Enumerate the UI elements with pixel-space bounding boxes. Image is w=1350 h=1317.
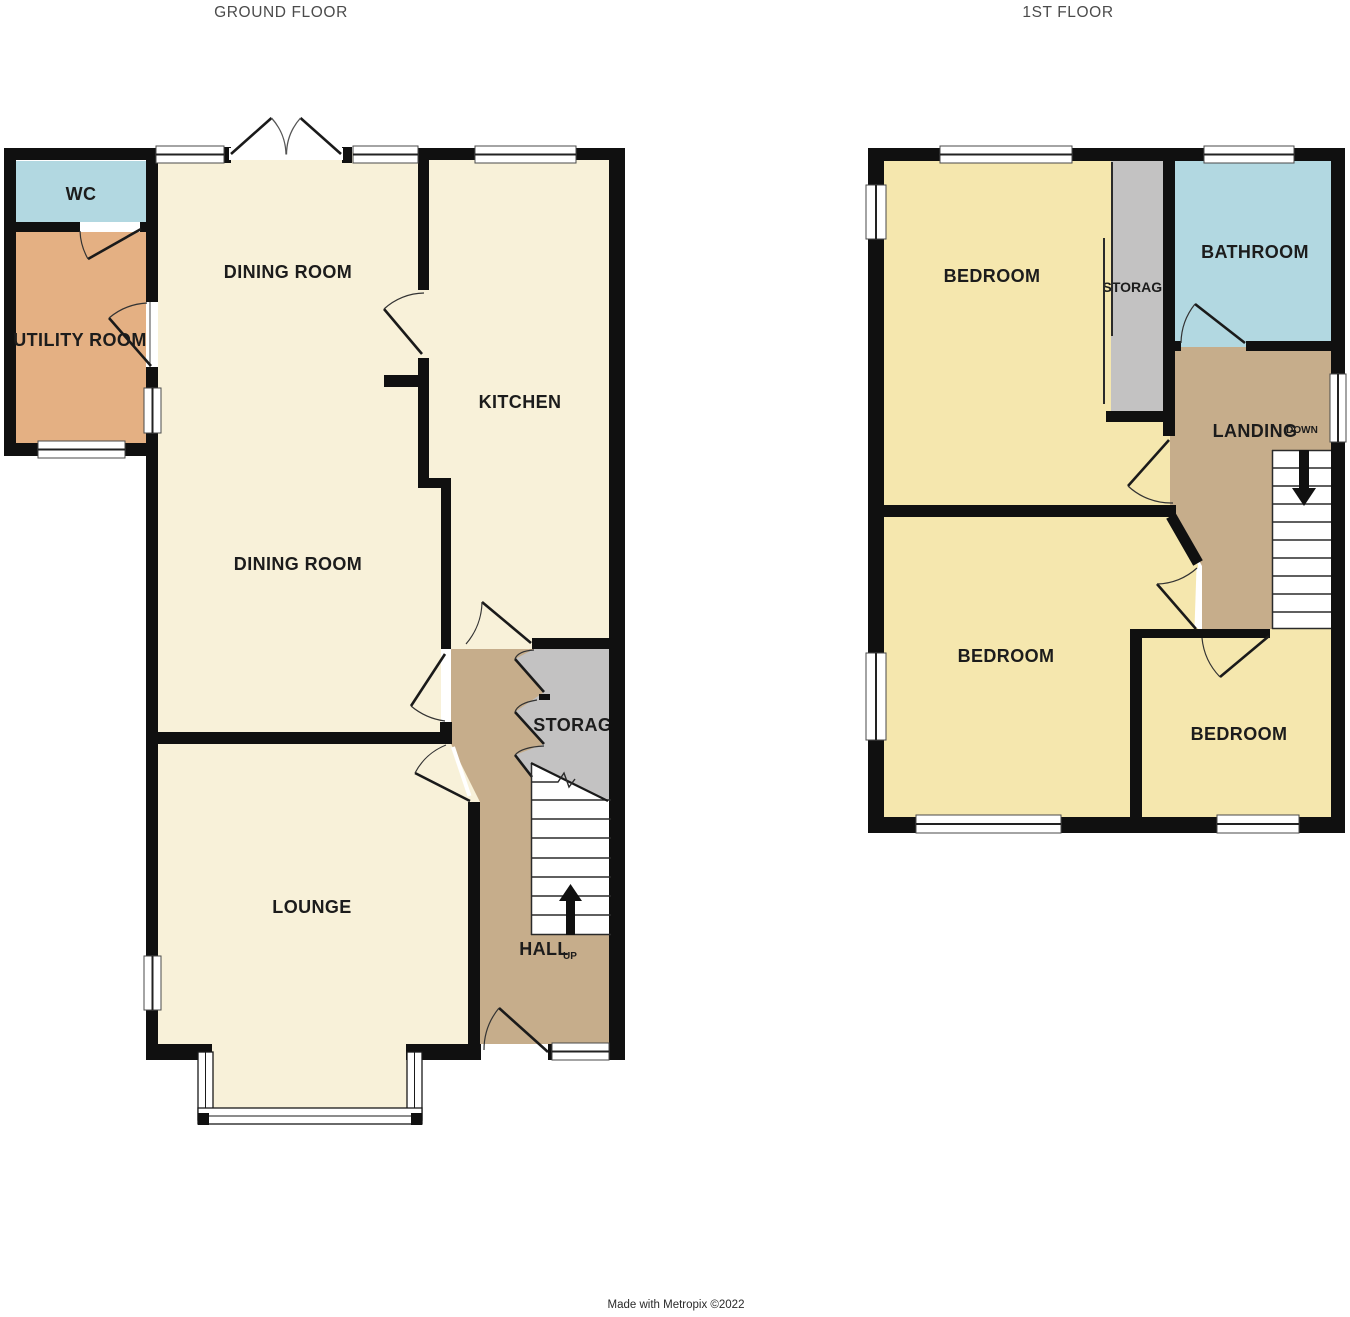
svg-text:WC: WC xyxy=(66,184,97,204)
svg-text:Made with Metropix ©2022: Made with Metropix ©2022 xyxy=(608,1299,745,1311)
svg-text:BATHROOM: BATHROOM xyxy=(1201,242,1309,262)
svg-text:DINING ROOM: DINING ROOM xyxy=(224,262,352,282)
svg-text:BEDROOM: BEDROOM xyxy=(958,646,1055,666)
svg-text:UTILITY ROOM: UTILITY ROOM xyxy=(13,330,146,350)
svg-text:LANDING: LANDING xyxy=(1213,421,1298,441)
svg-text:DOWN: DOWN xyxy=(1286,425,1318,436)
svg-text:1ST FLOOR: 1ST FLOOR xyxy=(1022,4,1113,21)
svg-text:BEDROOM: BEDROOM xyxy=(1191,724,1288,744)
svg-text:GROUND FLOOR: GROUND FLOOR xyxy=(214,4,348,21)
svg-text:DINING ROOM: DINING ROOM xyxy=(234,554,362,574)
svg-text:HALL: HALL xyxy=(519,939,569,959)
svg-text:LOUNGE: LOUNGE xyxy=(272,897,351,917)
svg-text:KITCHEN: KITCHEN xyxy=(479,392,562,412)
svg-text:BEDROOM: BEDROOM xyxy=(944,266,1041,286)
svg-text:UP: UP xyxy=(563,951,577,962)
